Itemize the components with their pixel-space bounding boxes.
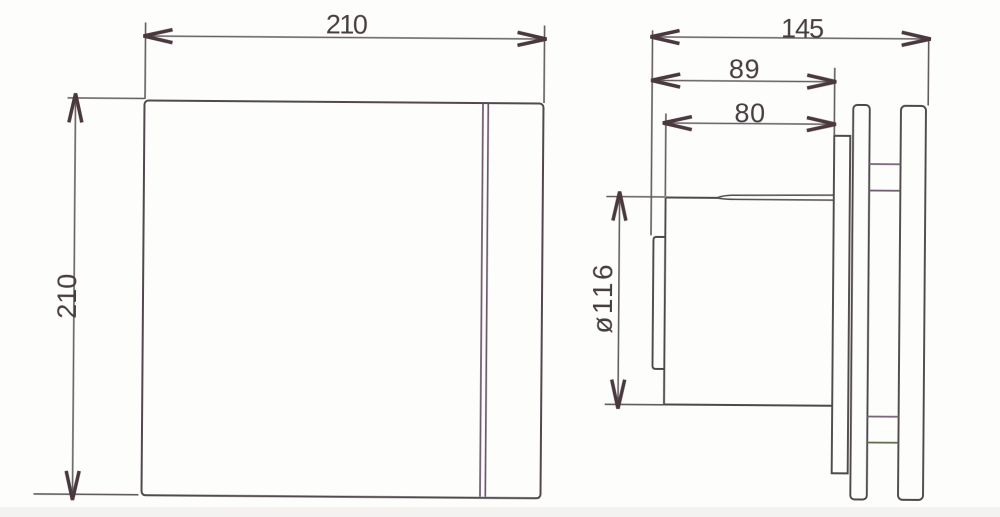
- svg-text:145: 145: [781, 13, 823, 43]
- svg-text:89: 89: [729, 54, 760, 84]
- svg-text:ø116: ø116: [587, 262, 619, 334]
- svg-text:210: 210: [326, 9, 367, 39]
- svg-text:80: 80: [734, 98, 765, 128]
- svg-text:210: 210: [52, 274, 82, 319]
